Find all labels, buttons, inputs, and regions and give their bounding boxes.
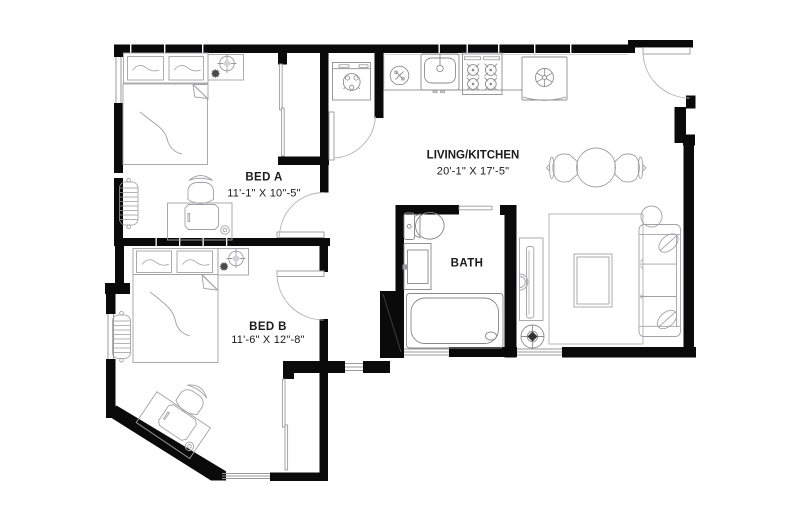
svg-text:LIVING/KITCHEN: LIVING/KITCHEN [427,150,520,162]
svg-text:20'-1" X 17'-5": 20'-1" X 17'-5" [437,166,510,178]
svg-text:BED B: BED B [249,321,287,333]
svg-text:BATH: BATH [451,258,484,270]
svg-text:11'-1" X 10"-5": 11'-1" X 10"-5" [227,188,300,200]
svg-text:11'-6" X 12"-8": 11'-6" X 12"-8" [231,334,304,346]
svg-text:BED A: BED A [245,172,282,184]
